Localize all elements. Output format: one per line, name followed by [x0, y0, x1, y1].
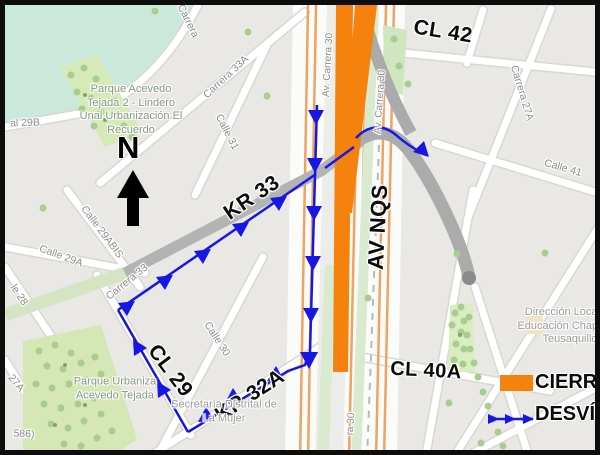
poi-label-secretaria: Secretaría Distrital de La Mujer	[171, 399, 277, 426]
park-label-acevedo-line1: Parque Acevedo	[80, 83, 183, 97]
poi-label-direccion: Dirección Local de Educación Chapinero T…	[517, 306, 600, 347]
park-label-acevedo-line4: Recuerdo	[80, 124, 183, 138]
poi-label-secretaria-line2: La Mujer	[171, 412, 277, 426]
legend-closure-label: CIERRE	[535, 371, 600, 394]
poi-label-direccion-line1: Dirección Local de	[517, 306, 600, 320]
poi-label-secretaria-line1: Secretaría Distrital de	[171, 399, 277, 413]
park-label-urbanizacion-line2: Acevedo Tejada	[74, 389, 157, 403]
street-label-al29b: al 29B	[10, 116, 40, 129]
park-label-urbanizacion: Parque Urbaniza Acevedo Tejada	[74, 376, 157, 403]
poi-label-direccion-line3: Teusaquillo	[517, 333, 600, 347]
flyover-end-cap	[462, 271, 476, 285]
park-label-urbanizacion-line1: Parque Urbaniza	[74, 376, 157, 390]
park-label-acevedo-line2: Tejada 2 - Lindero	[80, 97, 183, 111]
route-label-cl40a: CL 40A	[390, 358, 463, 385]
poi-label-direccion-line2: Educación Chapinero	[517, 319, 600, 333]
street-label-586: 586)	[13, 427, 35, 440]
park-label-acevedo: Parque Acevedo Tejada 2 - Lindero Unal U…	[80, 83, 183, 137]
legend-detour-label: DESVÍO	[535, 403, 600, 426]
legend-closure-swatch	[500, 375, 533, 391]
detour-map-figure: CL 42 KR 33 AV NQS CL 29 KR 32A CL 40A N…	[0, 0, 600, 455]
street-label-ra30: ra 30	[345, 412, 358, 436]
park-label-acevedo-line3: Unal Urbanización El	[80, 110, 183, 124]
legend-detour-arrow-icon	[486, 412, 536, 426]
route-label-av-nqs: AV NQS	[363, 184, 393, 271]
